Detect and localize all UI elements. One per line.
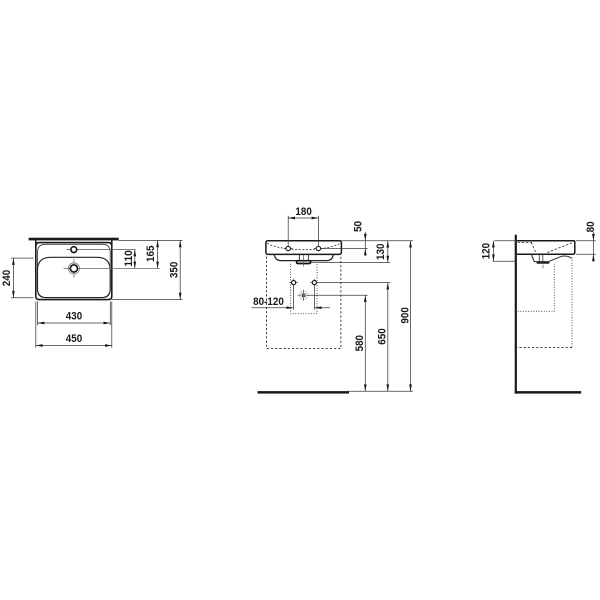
svg-text:130: 130 [375, 244, 387, 260]
svg-text:80-120: 80-120 [253, 296, 284, 308]
svg-text:580: 580 [354, 335, 366, 351]
svg-text:650: 650 [377, 328, 389, 344]
svg-text:120: 120 [481, 243, 493, 259]
svg-text:165: 165 [145, 246, 157, 262]
svg-text:350: 350 [169, 262, 181, 278]
svg-text:180: 180 [295, 206, 311, 218]
svg-text:110: 110 [123, 250, 135, 266]
svg-text:450: 450 [66, 333, 82, 345]
svg-text:80: 80 [585, 221, 597, 232]
svg-text:900: 900 [400, 307, 412, 323]
svg-text:50: 50 [352, 221, 364, 232]
svg-text:430: 430 [66, 311, 82, 323]
svg-text:240: 240 [1, 270, 13, 286]
